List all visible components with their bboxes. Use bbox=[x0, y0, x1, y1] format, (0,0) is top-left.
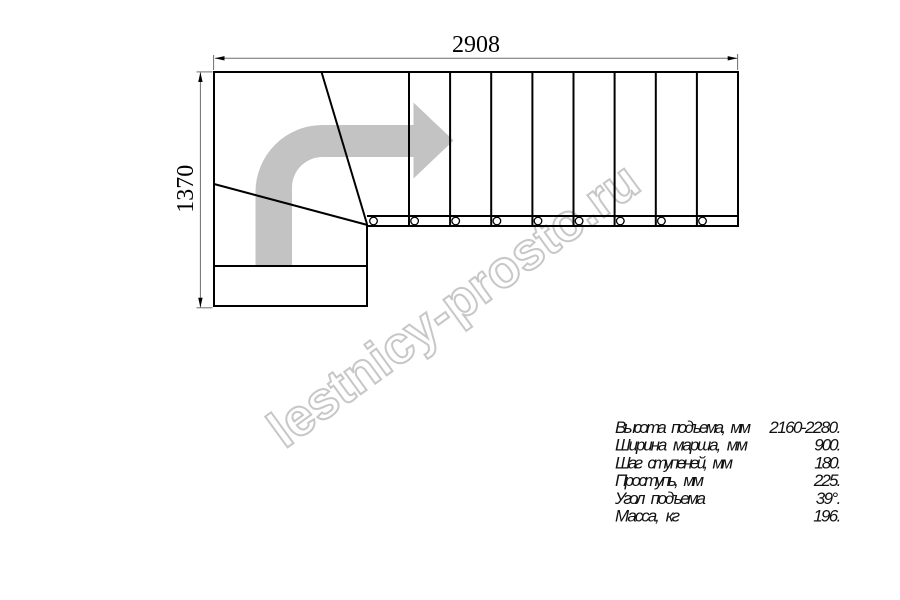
svg-text:196.: 196. bbox=[813, 507, 841, 526]
svg-text:1370: 1370 bbox=[173, 165, 199, 213]
svg-text:2908: 2908 bbox=[452, 32, 500, 58]
svg-text:Шаг ступеней, мм: Шаг ступеней, мм bbox=[615, 453, 733, 472]
svg-text:Ширина марша, мм: Ширина марша, мм bbox=[615, 436, 748, 455]
svg-text:39°.: 39°. bbox=[816, 489, 842, 508]
svg-text:Высота подъема, мм: Высота подъема, мм bbox=[615, 418, 751, 437]
svg-text:900.: 900. bbox=[814, 436, 841, 455]
svg-text:180.: 180. bbox=[814, 453, 841, 472]
svg-text:Масса, кг: Масса, кг bbox=[615, 507, 680, 526]
svg-text:Проступь, мм: Проступь, мм bbox=[615, 471, 704, 490]
svg-text:225.: 225. bbox=[813, 471, 842, 490]
svg-text:2160-2280.: 2160-2280. bbox=[768, 418, 841, 437]
svg-text:Угол подъема: Угол подъема bbox=[614, 489, 706, 508]
